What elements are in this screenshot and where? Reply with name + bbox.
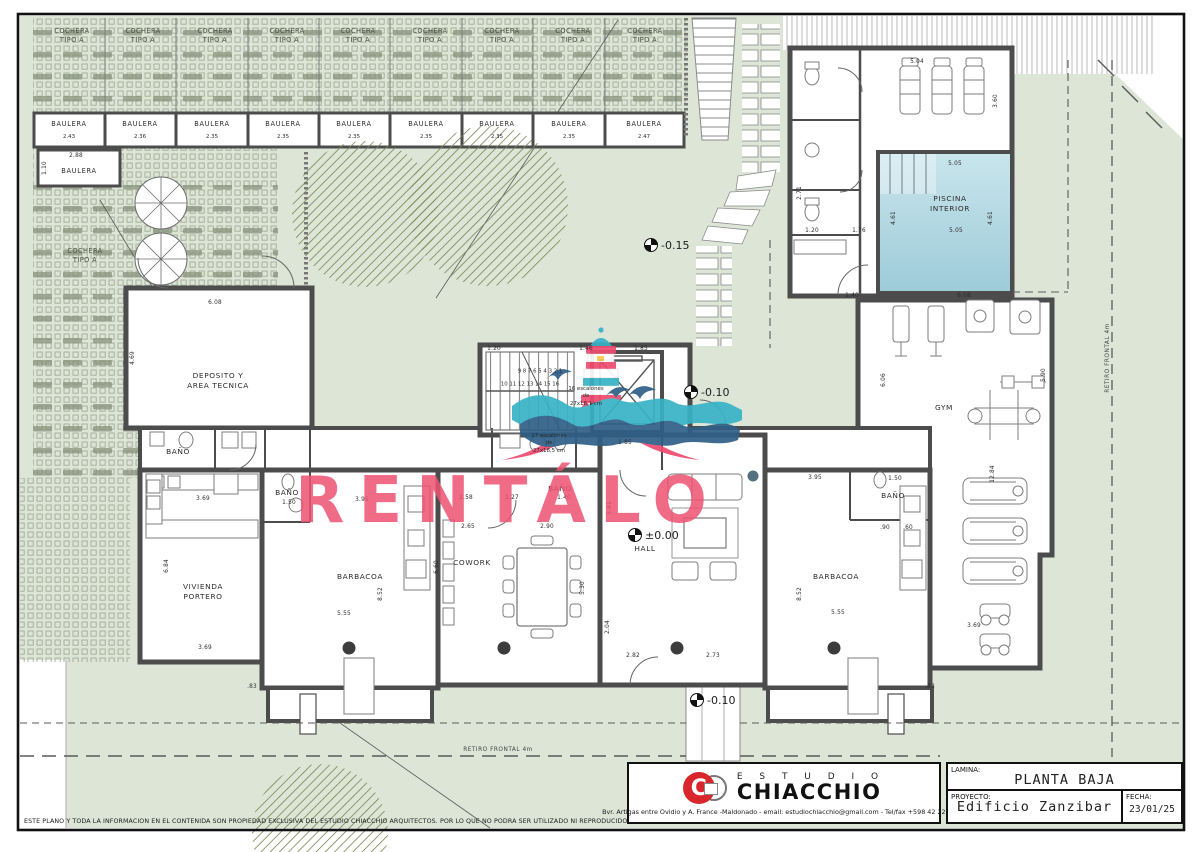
elevation-marker: -0.10 bbox=[690, 693, 735, 707]
studio-surname: CHIACCHIO bbox=[737, 782, 885, 803]
lamina-value: PLANTA BAJA bbox=[948, 772, 1181, 788]
elevation-target-icon bbox=[684, 385, 698, 399]
elevation-value: -0.10 bbox=[707, 694, 735, 707]
elevation-value: -0.10 bbox=[701, 386, 729, 399]
fecha-value: 23/01/25 bbox=[1123, 804, 1181, 815]
proyecto-value: Edificio Zanzibar bbox=[948, 799, 1121, 815]
disclaimer-text: ESTE PLANO Y TODA LA INFORMACION EN EL C… bbox=[24, 818, 624, 825]
studio-name-block: E S T U D I O CHIACCHIO bbox=[737, 773, 885, 803]
fecha-label: FECHA: bbox=[1126, 793, 1152, 801]
floor-plan-sheet: 2.881.106.084.691.201.461.855.043.605.05… bbox=[0, 0, 1200, 852]
indoor-pool bbox=[878, 152, 1012, 293]
studio-address: Bvr. Artigas entre Ovidio y A. France -M… bbox=[602, 808, 966, 816]
elevation-value: -0.15 bbox=[661, 239, 689, 252]
logo-bar bbox=[704, 783, 718, 795]
title-block-info: LAMINA: PLANTA BAJA PROYECTO: Edificio Z… bbox=[946, 762, 1183, 824]
fecha-cell: FECHA: 23/01/25 bbox=[1123, 791, 1181, 822]
lamina-cell: LAMINA: PLANTA BAJA bbox=[948, 764, 1181, 791]
proyecto-cell: PROYECTO: Edificio Zanzibar bbox=[948, 791, 1123, 822]
elevation-target-icon bbox=[644, 238, 658, 252]
title-block-studio: C E S T U D I O CHIACCHIO Bvr. Artigas e… bbox=[627, 762, 941, 824]
elevation-marker: -0.15 bbox=[644, 238, 689, 252]
elevation-marker: -0.10 bbox=[684, 385, 729, 399]
elevation-target-icon bbox=[690, 693, 704, 707]
studio-brand-row: C E S T U D I O CHIACCHIO bbox=[683, 772, 885, 804]
floor-plan-drawing bbox=[0, 0, 1200, 852]
watermark-brand-text: RENTÁLO bbox=[238, 464, 778, 538]
studio-logo-icon: C bbox=[683, 772, 729, 804]
